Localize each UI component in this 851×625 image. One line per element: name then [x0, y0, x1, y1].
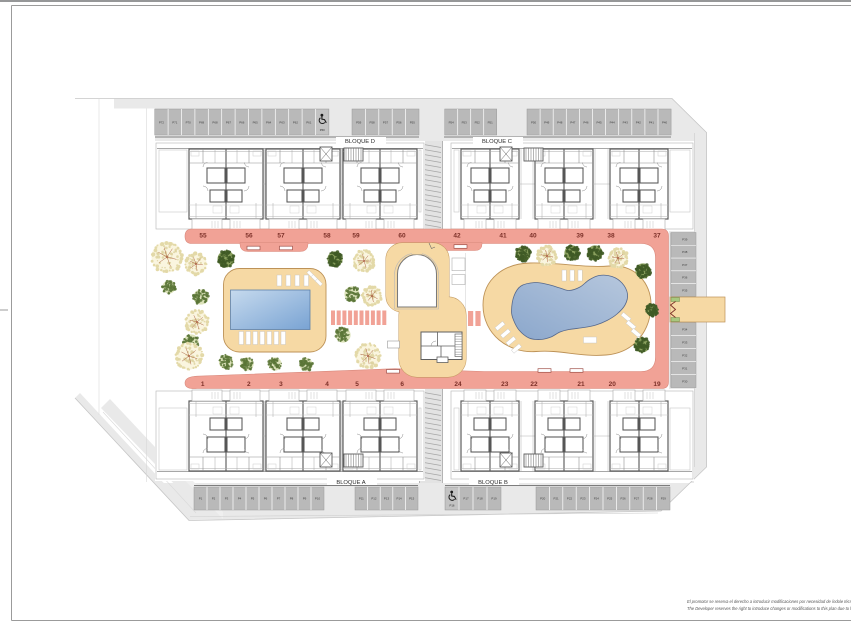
svg-text:P1: P1 [199, 497, 203, 501]
svg-text:40: 40 [529, 233, 537, 240]
svg-text:P3: P3 [225, 497, 229, 501]
svg-text:P33: P33 [682, 341, 688, 345]
svg-text:P64: P64 [266, 120, 272, 124]
svg-text:58: 58 [323, 233, 331, 240]
svg-text:P36: P36 [682, 276, 688, 280]
svg-text:P22: P22 [567, 497, 573, 501]
svg-text:39: 39 [576, 233, 584, 240]
svg-text:P5: P5 [251, 497, 255, 501]
svg-text:P18: P18 [477, 497, 483, 501]
svg-text:P68: P68 [212, 120, 218, 124]
svg-text:P63: P63 [279, 120, 285, 124]
svg-text:P34: P34 [682, 328, 688, 332]
svg-text:P13: P13 [384, 497, 390, 501]
svg-text:P56: P56 [396, 120, 402, 124]
svg-text:P26: P26 [621, 497, 627, 501]
svg-text:P41: P41 [649, 120, 655, 124]
svg-text:P25: P25 [607, 497, 613, 501]
svg-text:P52: P52 [475, 120, 481, 124]
svg-text:P50: P50 [531, 120, 537, 124]
svg-text:P51: P51 [488, 120, 494, 124]
svg-text:P67: P67 [226, 120, 232, 124]
svg-text:P30: P30 [682, 380, 688, 384]
svg-text:6: 6 [400, 381, 404, 388]
svg-text:60: 60 [398, 233, 406, 240]
svg-text:P61: P61 [306, 120, 312, 124]
svg-text:El promotor se reserva el dere: El promotor se reserva el derecho a intr… [687, 599, 851, 604]
svg-text:P31: P31 [682, 367, 688, 371]
svg-text:4: 4 [325, 381, 329, 388]
svg-text:P59: P59 [356, 120, 362, 124]
svg-text:24: 24 [454, 381, 462, 388]
svg-text:P9: P9 [303, 497, 307, 501]
svg-text:P71: P71 [172, 120, 178, 124]
svg-text:P17: P17 [463, 497, 469, 501]
svg-text:The Developer reserves the rig: The Developer reserves the right to intr… [687, 606, 851, 611]
svg-text:P47: P47 [570, 120, 576, 124]
svg-text:BLOQUE B: BLOQUE B [478, 480, 508, 486]
svg-text:P32: P32 [682, 354, 688, 358]
svg-text:P15: P15 [409, 497, 415, 501]
svg-text:BLOQUE A: BLOQUE A [336, 480, 365, 486]
svg-text:P23: P23 [580, 497, 586, 501]
svg-text:P39: P39 [682, 237, 688, 241]
svg-text:57: 57 [277, 233, 285, 240]
svg-text:P14: P14 [397, 497, 403, 501]
svg-text:22: 22 [530, 381, 538, 388]
svg-text:P24: P24 [594, 497, 600, 501]
svg-text:42: 42 [453, 233, 461, 240]
svg-text:1: 1 [201, 381, 205, 388]
svg-text:P72: P72 [159, 120, 165, 124]
svg-text:P70: P70 [186, 120, 192, 124]
svg-text:41: 41 [499, 233, 507, 240]
svg-text:P55: P55 [410, 120, 416, 124]
svg-text:P37: P37 [682, 263, 688, 267]
svg-text:P11: P11 [359, 497, 364, 501]
svg-text:P29: P29 [661, 497, 667, 501]
svg-text:BLOQUE C: BLOQUE C [482, 139, 512, 145]
svg-text:P57: P57 [383, 120, 389, 124]
svg-text:38: 38 [607, 233, 615, 240]
svg-text:21: 21 [577, 381, 585, 388]
svg-text:3: 3 [279, 381, 283, 388]
svg-text:55: 55 [199, 233, 207, 240]
svg-text:20: 20 [609, 381, 617, 388]
svg-text:P12: P12 [371, 497, 377, 501]
svg-text:P16: P16 [450, 504, 455, 508]
svg-text:5: 5 [355, 381, 359, 388]
svg-text:P53: P53 [462, 120, 468, 124]
svg-text:P2: P2 [212, 497, 216, 501]
svg-text:P49: P49 [544, 120, 550, 124]
svg-text:P45: P45 [596, 120, 602, 124]
svg-text:P58: P58 [370, 120, 376, 124]
svg-text:P20: P20 [540, 497, 546, 501]
svg-text:37: 37 [653, 233, 661, 240]
svg-text:P66: P66 [239, 120, 245, 124]
svg-text:P69: P69 [199, 120, 205, 124]
svg-text:P54: P54 [449, 120, 455, 124]
svg-text:P21: P21 [554, 497, 560, 501]
svg-text:P38: P38 [682, 250, 688, 254]
svg-text:P4: P4 [238, 497, 242, 501]
svg-text:P10: P10 [315, 497, 321, 501]
svg-text:P27: P27 [634, 497, 640, 501]
svg-text:P62: P62 [293, 120, 299, 124]
svg-text:P6: P6 [264, 497, 268, 501]
svg-text:P19: P19 [491, 497, 497, 501]
svg-text:P7: P7 [277, 497, 281, 501]
svg-text:P60: P60 [320, 128, 325, 132]
svg-text:P44: P44 [610, 120, 616, 124]
svg-text:23: 23 [501, 381, 509, 388]
svg-text:P65: P65 [253, 120, 259, 124]
svg-text:P28: P28 [647, 497, 653, 501]
svg-text:59: 59 [352, 233, 360, 240]
svg-text:P8: P8 [290, 497, 294, 501]
svg-text:P48: P48 [557, 120, 563, 124]
svg-text:P42: P42 [636, 120, 642, 124]
svg-text:P43: P43 [623, 120, 629, 124]
svg-text:19: 19 [653, 381, 661, 388]
svg-text:56: 56 [245, 233, 253, 240]
svg-text:P40: P40 [662, 120, 668, 124]
svg-text:2: 2 [247, 381, 251, 388]
svg-text:P46: P46 [583, 120, 589, 124]
svg-text:BLOQUE D: BLOQUE D [345, 139, 375, 145]
svg-text:P35: P35 [682, 288, 688, 292]
